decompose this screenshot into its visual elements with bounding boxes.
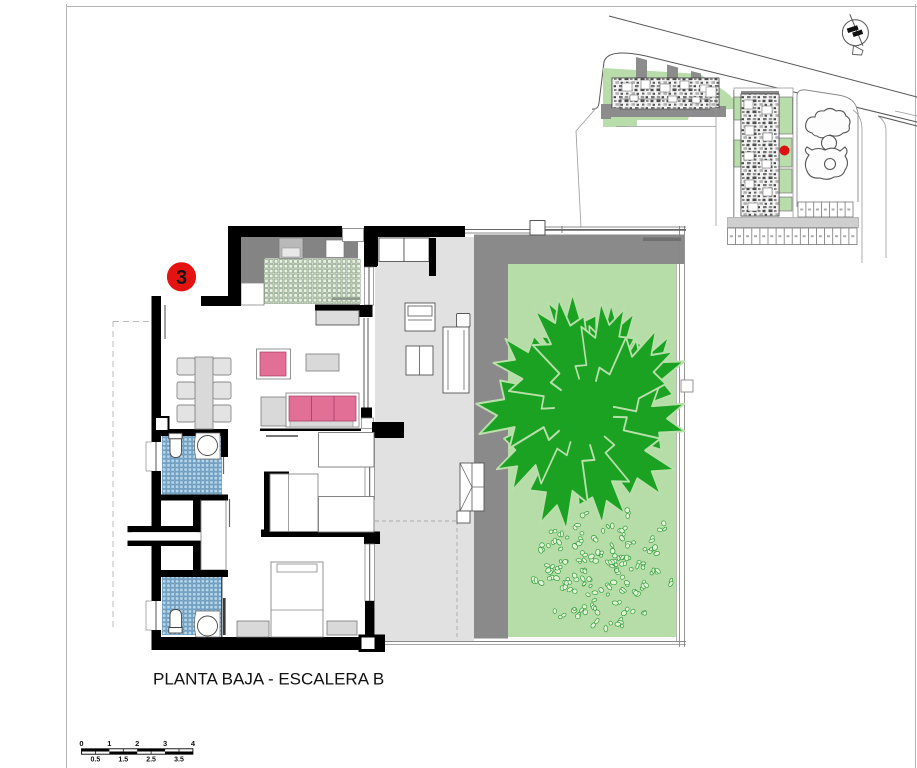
svg-text:0.5: 0.5 xyxy=(91,757,101,764)
svg-text:2: 2 xyxy=(135,739,139,748)
svg-text:1: 1 xyxy=(107,739,111,748)
svg-text:PLANTA BAJA - ESCALERA B: PLANTA BAJA - ESCALERA B xyxy=(153,670,384,689)
svg-text:3.5: 3.5 xyxy=(174,757,184,764)
svg-text:2.5: 2.5 xyxy=(146,757,156,764)
svg-text:3: 3 xyxy=(163,739,167,748)
svg-text:0: 0 xyxy=(79,739,83,748)
svg-text:3: 3 xyxy=(176,267,187,289)
svg-text:1.5: 1.5 xyxy=(118,757,128,764)
